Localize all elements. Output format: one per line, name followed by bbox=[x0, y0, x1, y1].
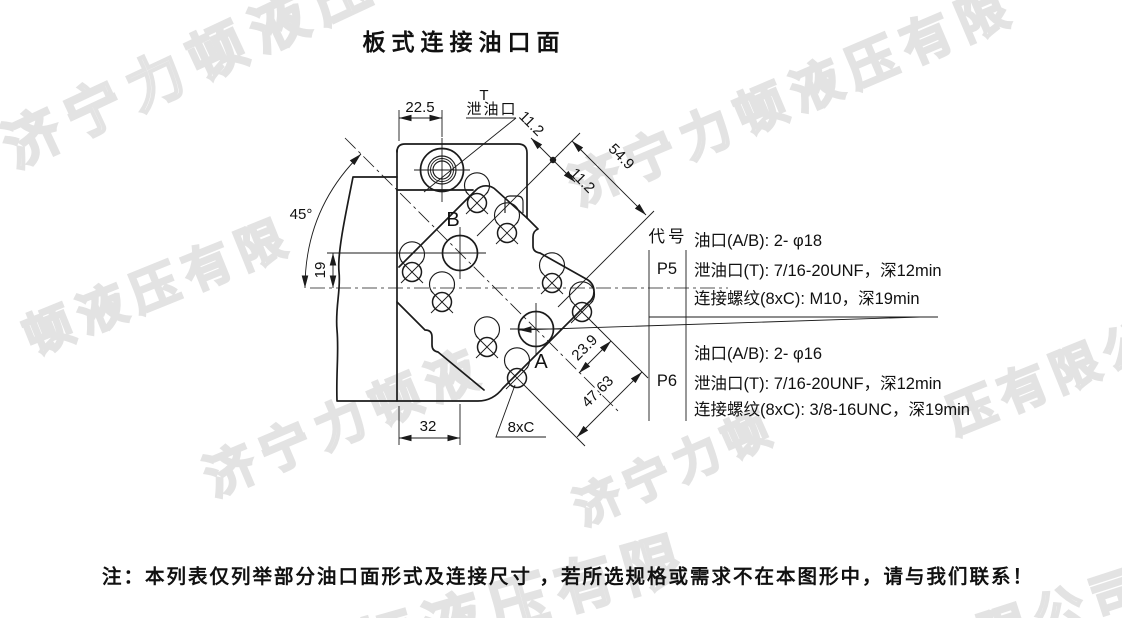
watermark-text: 济宁力顿液压 bbox=[0, 0, 390, 179]
watermark-layer: 济宁力顿液压 济宁力顿液压有限 顿液压有限 济宁力顿液 压有限公司 济宁力顿 济… bbox=[0, 0, 1122, 618]
flange-upper-left-edge bbox=[399, 186, 527, 267]
bolt-hole bbox=[505, 348, 530, 389]
dim-extension-line bbox=[558, 211, 654, 307]
watermark-text: 压有限公司 bbox=[939, 291, 1122, 445]
dim-offset-upper: 11.2 bbox=[515, 108, 547, 140]
watermark-text: 济宁力顿液压有限 bbox=[561, 0, 1025, 216]
page-title: 板式连接油口面 bbox=[363, 29, 566, 55]
dim-bottom-width: 32 bbox=[420, 418, 437, 435]
port-a-label: A bbox=[534, 351, 548, 373]
dim-angle: 45° bbox=[290, 206, 313, 223]
port-t-name: 泄油口 bbox=[466, 101, 517, 118]
bolt-hole bbox=[475, 317, 500, 358]
port-t bbox=[414, 138, 470, 202]
table-header: 代号 bbox=[649, 227, 688, 246]
engineering-drawing: 济宁力顿液压 济宁力顿液压有限 顿液压有限 济宁力顿液 压有限公司 济宁力顿 济… bbox=[0, 0, 1122, 618]
port-b bbox=[327, 227, 486, 279]
bolt-hole bbox=[465, 173, 490, 214]
table-spec: 连接螺纹(8xC): M10，深19min bbox=[694, 289, 920, 308]
port-b-label: B bbox=[446, 209, 459, 231]
footer-note: 注：本列表仅列举部分油口面形式及连接尺寸 ，若所选规格或需求不在本图形中，请与我… bbox=[102, 565, 1034, 588]
top-boss-outline bbox=[397, 144, 527, 218]
table-spec: 连接螺纹(8xC): 3/8-16UNC，深19min bbox=[694, 400, 970, 419]
dim-height: 19 bbox=[312, 262, 329, 279]
table-spec: 泄油口(T): 7/16-20UNF，深12min bbox=[694, 261, 942, 280]
catalog-page: 济宁力顿液压 济宁力顿液压有限 顿液压有限 济宁力顿液 压有限公司 济宁力顿 济… bbox=[0, 0, 1122, 618]
watermark-text: 顿液压有限 bbox=[17, 210, 301, 366]
port-a-table-leader bbox=[519, 317, 920, 330]
bolt-hole bbox=[430, 272, 455, 313]
table-code-p6: P6 bbox=[657, 372, 677, 390]
dim-junction-dot bbox=[550, 157, 556, 163]
table-spec: 油口(A/B): 2- φ18 bbox=[694, 231, 822, 250]
watermark-text: 济宁力顿液 bbox=[196, 338, 494, 507]
watermark-text: 济宁力顿 bbox=[566, 400, 784, 535]
port-t-crosshair bbox=[414, 138, 470, 202]
dim-bolt-near: 23.9 bbox=[568, 331, 601, 364]
bolt-pattern-label: 8xC bbox=[508, 419, 535, 436]
bolt-hole bbox=[495, 203, 520, 244]
table-code-p5: P5 bbox=[657, 260, 677, 278]
dim-bolt-far: 47.63 bbox=[579, 373, 618, 412]
port-t-leader bbox=[424, 118, 516, 192]
table-spec: 油口(A/B): 2- φ16 bbox=[694, 344, 822, 363]
dim-top-width: 22.5 bbox=[405, 99, 434, 116]
table-spec: 泄油口(T): 7/16-20UNF，深12min bbox=[694, 374, 942, 393]
